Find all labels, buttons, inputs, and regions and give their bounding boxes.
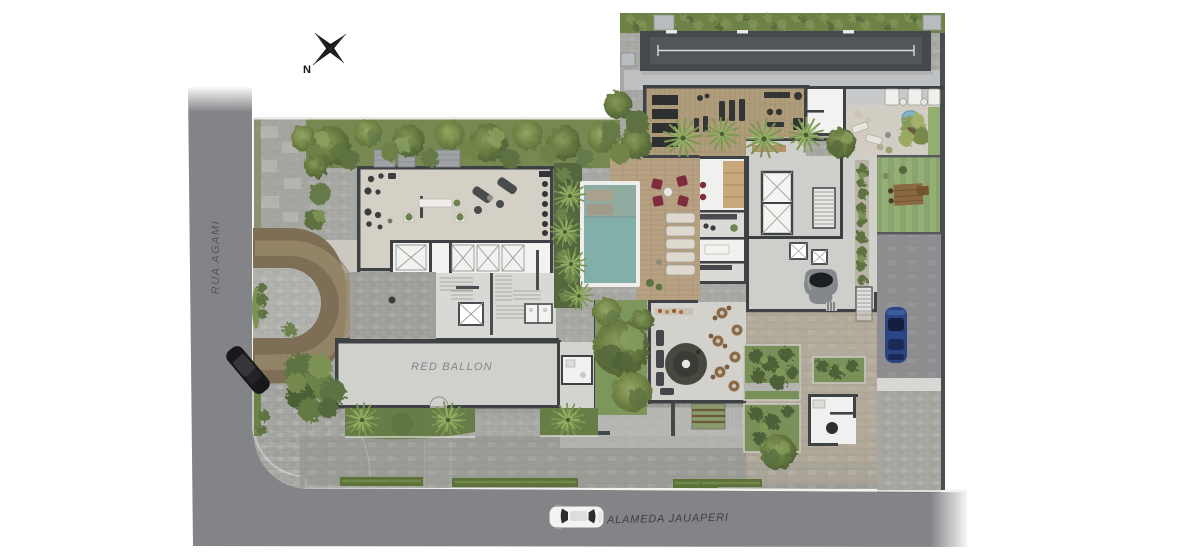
svg-text:RUA AGAMI: RUA AGAMI bbox=[210, 220, 222, 294]
svg-text:RED BALLON: RED BALLON bbox=[411, 361, 493, 373]
svg-text:N: N bbox=[303, 64, 311, 76]
